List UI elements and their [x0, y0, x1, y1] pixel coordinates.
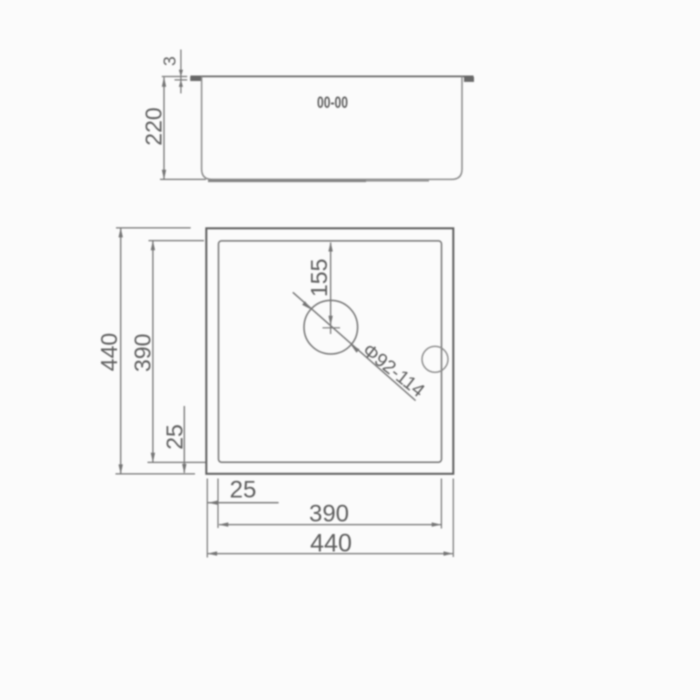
svg-text:155: 155	[306, 259, 332, 297]
svg-text:00-00: 00-00	[317, 94, 348, 112]
svg-text:390: 390	[309, 501, 349, 528]
svg-text:3: 3	[159, 56, 179, 66]
svg-text:440: 440	[96, 333, 122, 371]
svg-text:Φ92-114: Φ92-114	[358, 340, 428, 402]
svg-text:220: 220	[141, 107, 167, 145]
svg-text:25: 25	[162, 424, 188, 450]
svg-text:440: 440	[310, 530, 352, 558]
svg-text:25: 25	[230, 477, 257, 504]
svg-text:390: 390	[130, 334, 156, 372]
